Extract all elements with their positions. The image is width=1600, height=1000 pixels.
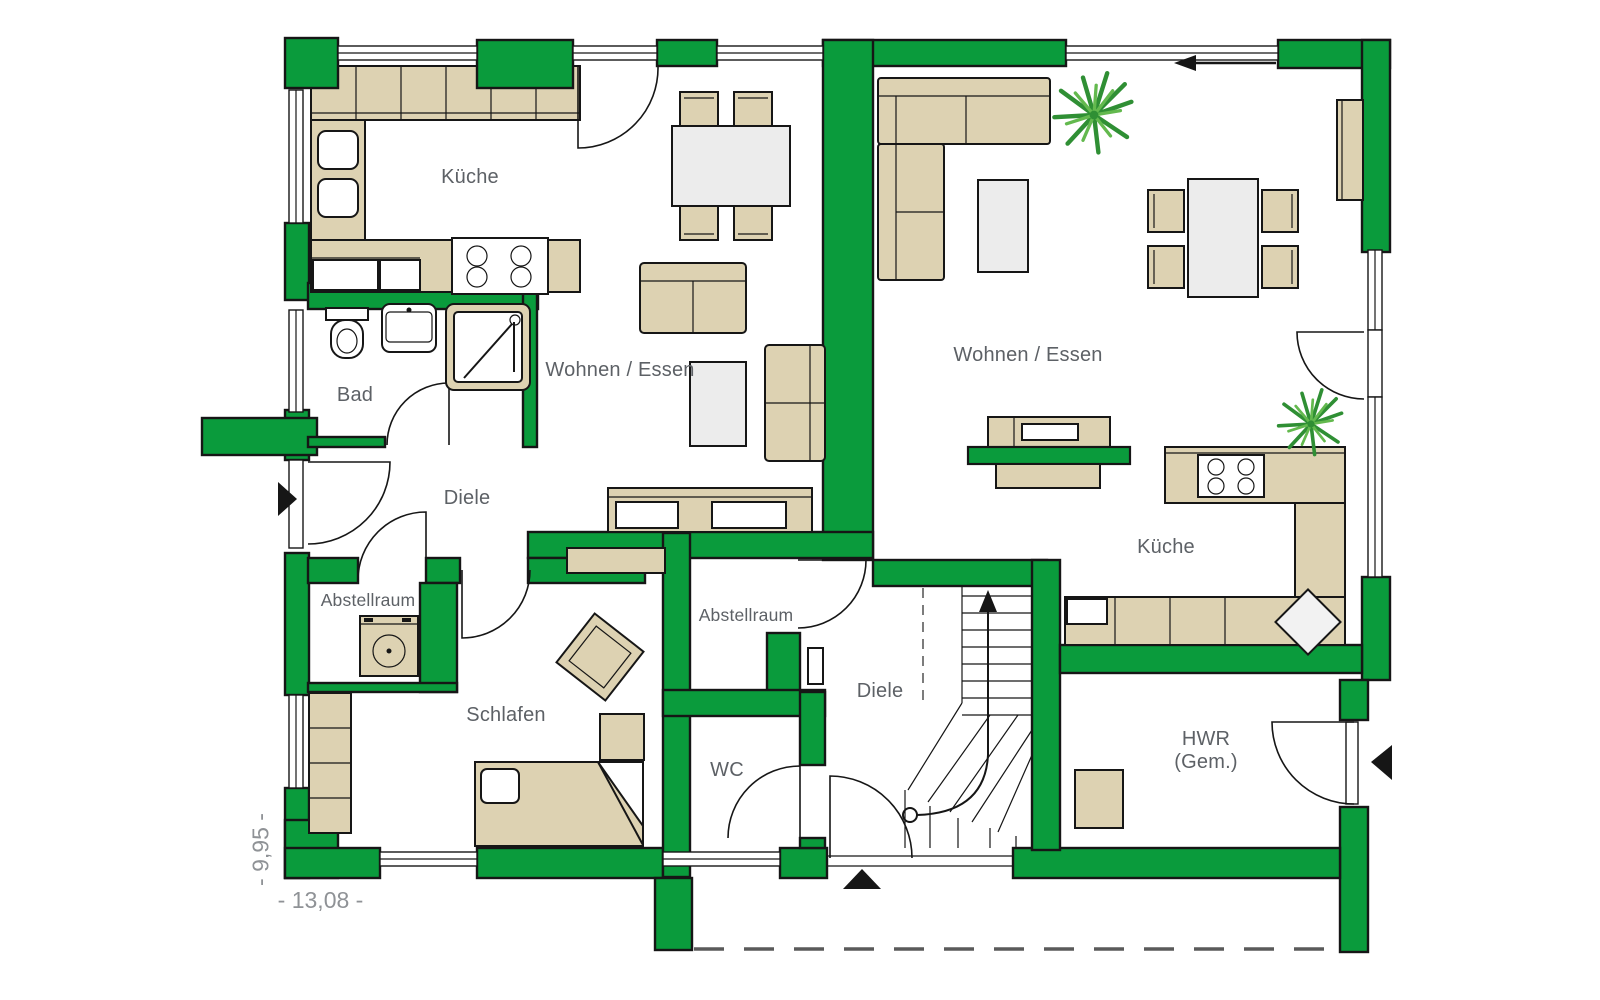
room-label-bad: Bad [320,384,390,407]
room-label-wc: WC [702,759,752,782]
room-label-schlafen: Schlafen [461,704,551,727]
dimension-width: - 13,08 - [263,887,378,914]
sink-icon [382,304,436,352]
room-label-wohnen-left: Wohnen / Essen [535,359,705,382]
bed [475,762,643,846]
coffee-table-right [978,180,1028,272]
floor-plan: Küche Wohnen / Essen Bad Diele Abstellra… [0,0,1600,1000]
sofa-left-horizontal [640,263,746,333]
entrance-arrow-hwr-icon [1371,745,1392,780]
nightstand [600,714,644,760]
hwr-line2: (Gem.) [1174,751,1237,773]
hwr-appliance [1075,770,1123,828]
stairs-up-arrow-icon [979,590,997,612]
dimension-depth: - 9,95 - [248,795,275,905]
entrance-arrow-main-icon [843,869,881,889]
hwr-line1: HWR [1182,728,1230,750]
dresser-schlafen [567,548,665,573]
room-label-diele-right: Diele [840,680,920,703]
dining-set-left [672,92,790,240]
tv-sideboard-left [608,488,812,532]
room-label-kueche-right: Küche [1116,536,1216,559]
room-label-wohnen-right: Wohnen / Essen [938,344,1118,367]
radiator [808,648,823,684]
room-label-hwr: HWR(Gem.) [1146,728,1266,774]
armchair-rotated [556,613,643,700]
kitchen-counter-left [311,120,580,294]
entrance-threshold [827,856,1013,866]
dining-set-right [1148,179,1298,297]
staircase [903,586,1032,848]
sofa-left-vertical [765,345,825,461]
stove-left [452,238,548,294]
floor-plan-drawing [0,0,1600,1000]
shower-icon [446,304,530,390]
stove-right [1198,455,1264,497]
toilet-icon [326,308,368,358]
room-label-abstellraum-right: Abstellraum [686,605,806,626]
tv-lowboard-right-wall [1337,100,1363,200]
room-label-kueche-left: Küche [420,166,520,189]
washing-machine-icon [360,616,418,676]
plant-icon [1279,390,1342,455]
dining-table-right [1188,179,1258,297]
wardrobe [309,693,351,833]
room-label-abstellraum-left: Abstellraum [308,590,428,611]
plant-icon [1054,73,1131,152]
tv-partition-wall [968,417,1130,488]
room-label-diele-left: Diele [427,487,507,510]
dining-table-left [672,126,790,206]
